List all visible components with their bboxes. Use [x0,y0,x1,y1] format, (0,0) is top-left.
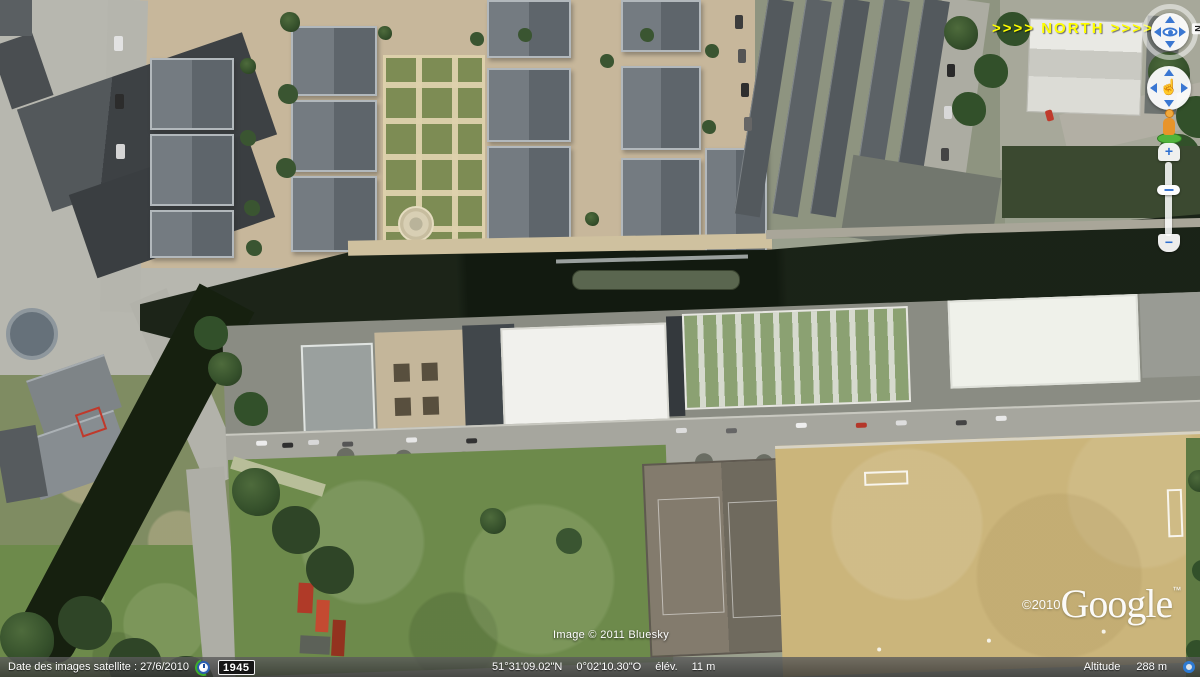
imagery-credit: Image © 2011 Bluesky [553,629,669,641]
longitude-value: 0°02'10.30"O [576,657,641,677]
watermark-copyright: ©2010 [1022,597,1061,612]
status-left-group: Date des images satellite : 27/6/2010 19… [8,657,255,677]
apartment-roof [487,0,571,58]
altitude-label: Altitude [1084,657,1121,677]
latitude-value: 51°31'09.02"N [492,657,562,677]
look-right-arrow-icon[interactable] [1179,27,1186,37]
green-roof-building [682,306,911,410]
altitude-value: 288 m [1136,657,1167,677]
elevation-value: 11 m [692,657,716,677]
apartment-roof [150,58,234,130]
google-logo: Google [1061,581,1173,626]
move-joystick[interactable]: ☝ [1147,66,1191,110]
move-up-arrow-icon[interactable] [1164,69,1174,76]
trademark-symbol: ™ [1172,585,1181,595]
zoom-in-button[interactable]: + [1158,143,1180,161]
garden-fountain [398,206,434,242]
hand-icon: ☝ [1160,80,1179,95]
shipping-container [297,583,314,614]
parked-cars [114,36,123,51]
zoom-out-button[interactable]: − [1158,234,1180,252]
tan-building [374,329,469,432]
eye-pupil-icon [1168,30,1173,35]
white-warehouse [948,294,1141,389]
dark-truck [300,635,331,655]
look-up-arrow-icon[interactable] [1165,16,1175,23]
compass-north-marker[interactable]: N [1192,23,1200,34]
zoom-slider-track[interactable] [1165,162,1172,236]
google-watermark: ©2010Google™ [1022,580,1181,627]
apartment-roof [621,0,701,52]
imagery-date-label: Date des images satellite : 27/6/2010 [8,657,189,677]
sports-pitch [775,431,1200,677]
pegman-head-icon [1165,109,1174,118]
tree [280,12,300,32]
move-right-arrow-icon[interactable] [1181,83,1188,93]
status-coordinates-group: 51°31'09.02"N 0°02'10.30"O élév. 11 m [492,657,715,677]
floodlight-dots [877,647,881,651]
status-bar: Date des images satellite : 27/6/2010 19… [0,657,1200,677]
court-lines [658,497,725,616]
imagery-year-badge[interactable]: 1945 [218,660,254,675]
streaming-indicator-icon [1183,661,1195,673]
canal-lock [572,270,740,290]
tree [585,212,599,226]
google-earth-window: >>>> NORTH >>>> N ☝ + − ©2010Google™ Ima… [0,0,1200,677]
satellite-imagery[interactable] [0,0,1200,677]
corner-building [0,0,32,36]
tree [944,16,978,50]
tree-cluster [208,352,242,386]
apartment-roof [291,26,377,96]
move-left-arrow-icon[interactable] [1150,83,1157,93]
parked-cars [256,440,267,445]
look-left-arrow-icon[interactable] [1154,27,1161,37]
zoom-handle-mark-icon [1164,189,1173,191]
apartment-roof [621,158,701,240]
historical-imagery-clock-icon[interactable] [197,661,210,674]
look-down-arrow-icon[interactable] [1165,41,1175,48]
shipping-container [315,600,330,633]
formal-garden [383,55,485,265]
move-down-arrow-icon[interactable] [1164,100,1174,107]
apartment-roof [150,210,234,258]
tree [480,508,506,534]
look-joystick[interactable] [1151,13,1189,51]
goal-marking [1167,489,1184,537]
grey-building [1139,291,1200,377]
tree [240,58,256,74]
parked-cars [735,15,743,29]
white-warehouse [500,322,669,430]
apartment-roof [487,68,571,142]
apartment-roof [291,100,377,172]
playground-circle [6,308,58,360]
north-direction-label: >>>> NORTH >>>> [992,20,1154,37]
pegman[interactable] [1163,118,1175,135]
goal-marking [864,470,908,486]
apartment-roof [621,66,701,150]
elevation-label: élév. [655,657,677,677]
tree-cluster [232,468,280,516]
zoom-slider-handle[interactable] [1157,185,1180,195]
apartment-roof [150,134,234,206]
tree [378,26,392,40]
eye-icon [1163,28,1178,37]
apartment-roof [487,146,571,248]
shipping-container [331,620,346,657]
status-altitude-group: Altitude 288 m [1084,657,1195,677]
grey-shed [301,343,376,433]
